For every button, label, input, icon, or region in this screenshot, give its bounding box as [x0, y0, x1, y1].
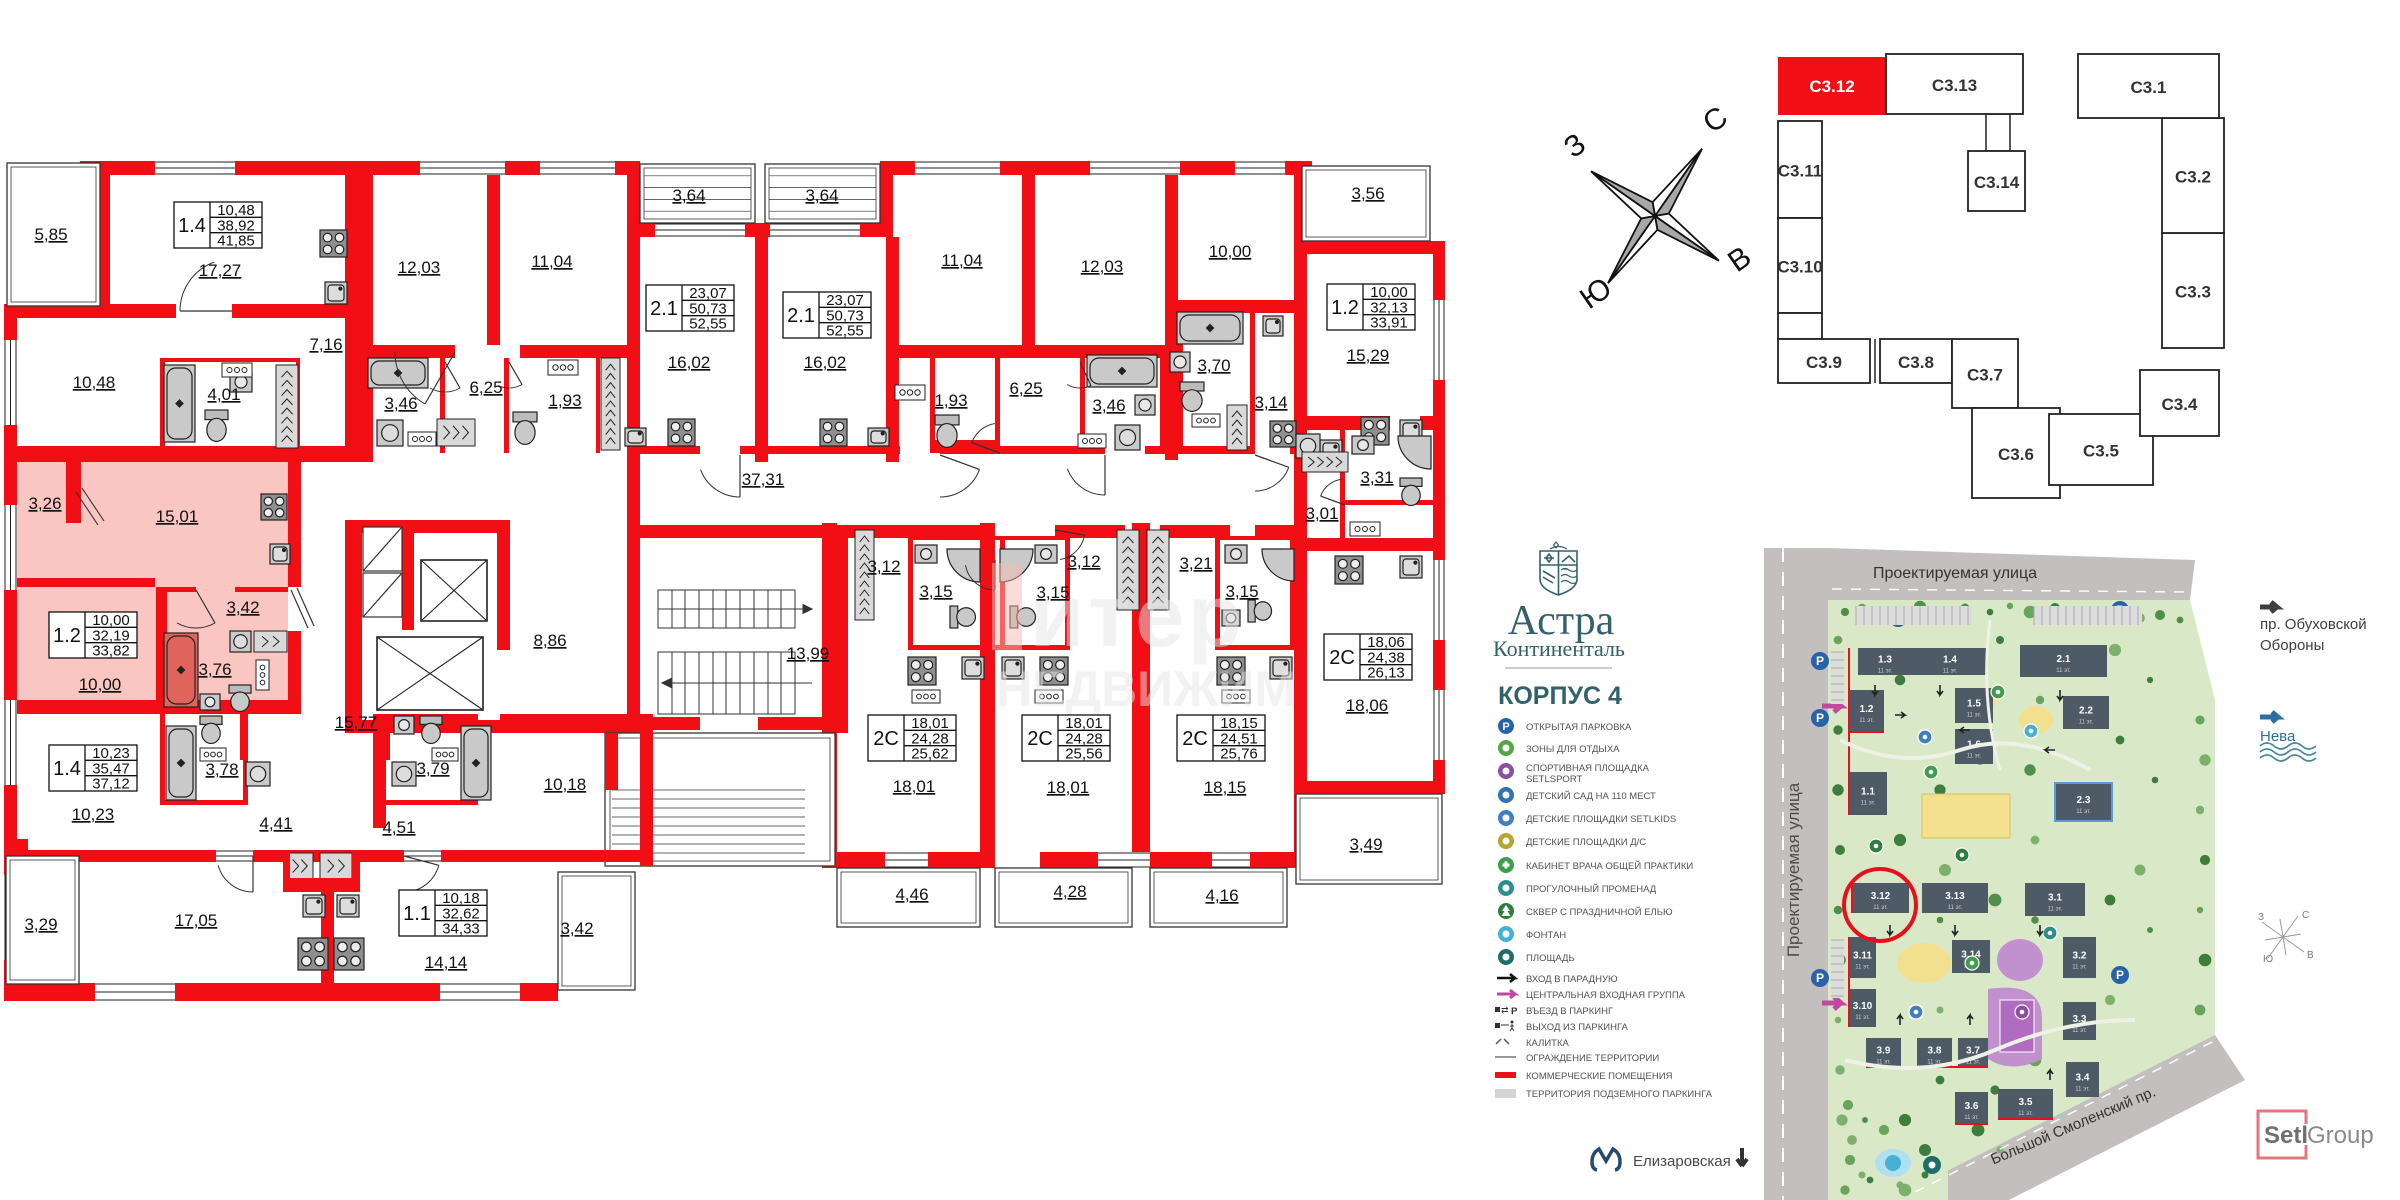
svg-text:Ю: Ю	[2263, 954, 2273, 965]
svg-text:3.10: 3.10	[1853, 1001, 1873, 1012]
svg-text:17,27: 17,27	[199, 261, 242, 280]
svg-text:ФОНТАН: ФОНТАН	[1526, 930, 1566, 941]
svg-text:37,31: 37,31	[742, 470, 785, 489]
svg-text:2С: 2С	[1027, 728, 1053, 750]
svg-text:Континенталь: Континенталь	[1493, 636, 1625, 661]
svg-text:СПОРТИВНАЯ ПЛОЩАДКА: СПОРТИВНАЯ ПЛОЩАДКА	[1526, 763, 1650, 774]
svg-text:пр. Обуховской: пр. Обуховской	[2260, 616, 2367, 633]
svg-text:15,77: 15,77	[335, 713, 378, 732]
svg-text:С3.11: С3.11	[1778, 162, 1822, 181]
svg-text:18,01: 18,01	[1047, 778, 1090, 797]
svg-text:4,16: 4,16	[1205, 886, 1238, 905]
svg-text:3.6: 3.6	[1965, 1101, 1979, 1112]
svg-text:11 эт.: 11 эт.	[2056, 668, 2071, 674]
svg-text:1.2: 1.2	[1331, 297, 1359, 319]
svg-text:15,29: 15,29	[1347, 346, 1390, 365]
svg-text:11 эт.: 11 эт.	[1964, 1115, 1979, 1121]
svg-text:итер: итер	[1030, 566, 1246, 665]
svg-text:25,62: 25,62	[911, 746, 949, 763]
svg-text:3,46: 3,46	[1092, 396, 1125, 415]
svg-text:SETLSPORT: SETLSPORT	[1526, 774, 1583, 785]
svg-text:2.1: 2.1	[787, 305, 815, 327]
svg-text:11,04: 11,04	[531, 252, 572, 271]
svg-text:С3.8: С3.8	[1898, 353, 1934, 372]
svg-text:3,12: 3,12	[867, 557, 900, 576]
svg-text:P: P	[1502, 721, 1509, 733]
svg-text:С3.4: С3.4	[2162, 395, 2198, 414]
svg-text:3.1: 3.1	[2048, 893, 2062, 904]
svg-text:11 эт.: 11 эт.	[2075, 1087, 2090, 1093]
svg-text:11 эт.: 11 эт.	[1943, 669, 1958, 675]
svg-text:2С: 2С	[1329, 647, 1355, 669]
svg-text:3,46: 3,46	[384, 394, 417, 413]
svg-text:ДЕТСКИЙ САД НА 110 МЕСТ: ДЕТСКИЙ САД НА 110 МЕСТ	[1526, 790, 1656, 802]
svg-text:12,03: 12,03	[398, 258, 441, 277]
svg-text:С3.1: С3.1	[2131, 78, 2167, 97]
svg-text:26,13: 26,13	[1367, 665, 1405, 682]
svg-text:С3.2: С3.2	[2175, 168, 2211, 187]
svg-text:11 эт.: 11 эт.	[2076, 809, 2091, 815]
svg-text:16,02: 16,02	[804, 353, 847, 372]
svg-text:11 эт.: 11 эт.	[2072, 1028, 2087, 1034]
svg-text:2С: 2С	[873, 728, 899, 750]
svg-text:P: P	[1511, 1006, 1518, 1017]
svg-text:4,46: 4,46	[895, 885, 928, 904]
svg-text:3.2: 3.2	[2073, 951, 2087, 962]
svg-text:1,93: 1,93	[548, 391, 581, 410]
svg-text:10,00: 10,00	[79, 675, 122, 694]
svg-text:6,25: 6,25	[469, 378, 502, 397]
svg-text:С3.9: С3.9	[1806, 353, 1842, 372]
svg-text:ЗОНЫ ДЛЯ ОТДЫХА: ЗОНЫ ДЛЯ ОТДЫХА	[1526, 744, 1620, 755]
svg-text:3,42: 3,42	[560, 919, 593, 938]
svg-text:КАЛИТКА: КАЛИТКА	[1526, 1038, 1569, 1049]
svg-text:10,00: 10,00	[1209, 242, 1252, 261]
svg-text:3.11: 3.11	[1853, 951, 1872, 962]
svg-text:3.12: 3.12	[1871, 891, 1891, 902]
svg-text:С3.5: С3.5	[2083, 442, 2119, 461]
svg-text:15,01: 15,01	[156, 507, 199, 526]
svg-text:С3.12: С3.12	[1809, 77, 1854, 96]
svg-text:ОТКРЫТАЯ ПАРКОВКА: ОТКРЫТАЯ ПАРКОВКА	[1526, 722, 1632, 733]
svg-text:13,99: 13,99	[787, 644, 830, 663]
svg-text:3,29: 3,29	[24, 915, 57, 934]
svg-text:4,28: 4,28	[1053, 882, 1086, 901]
svg-text:18,01: 18,01	[893, 777, 936, 796]
svg-text:С3.10: С3.10	[1777, 258, 1822, 277]
svg-text:3.5: 3.5	[2019, 1097, 2033, 1108]
svg-text:В: В	[2307, 950, 2314, 961]
svg-text:8,86: 8,86	[533, 631, 566, 650]
svg-text:ВХОД В ПАРАДНУЮ: ВХОД В ПАРАДНУЮ	[1526, 974, 1618, 985]
svg-text:ЦЕНТРАЛЬНАЯ ВХОДНАЯ ГРУППА: ЦЕНТРАЛЬНАЯ ВХОДНАЯ ГРУППА	[1526, 990, 1686, 1001]
svg-text:1.4: 1.4	[178, 215, 206, 237]
svg-text:3,64: 3,64	[672, 186, 705, 205]
svg-text:P: P	[2116, 968, 2124, 982]
svg-text:С: С	[2302, 910, 2309, 921]
svg-text:З: З	[2258, 912, 2264, 923]
svg-text:2.1: 2.1	[650, 298, 678, 320]
svg-text:P: P	[1816, 654, 1824, 668]
svg-text:КАБИНЕТ ВРАЧА ОБЩЕЙ ПРАКТИКИ: КАБИНЕТ ВРАЧА ОБЩЕЙ ПРАКТИКИ	[1526, 860, 1693, 872]
svg-text:ТЕРРИТОРИЯ ПОДЗЕМНОГО ПАРКИНГА: ТЕРРИТОРИЯ ПОДЗЕМНОГО ПАРКИНГА	[1526, 1089, 1713, 1100]
svg-text:3.4: 3.4	[2076, 1073, 2090, 1084]
svg-text:6,25: 6,25	[1009, 379, 1042, 398]
svg-text:16,02: 16,02	[668, 353, 711, 372]
svg-text:1.3: 1.3	[1878, 655, 1892, 666]
svg-text:ВЫХОД ИЗ ПАРКИНГА: ВЫХОД ИЗ ПАРКИНГА	[1526, 1022, 1628, 1033]
svg-text:52,55: 52,55	[689, 316, 727, 333]
svg-text:2.1: 2.1	[2057, 654, 2071, 665]
svg-text:4,01: 4,01	[207, 385, 240, 404]
svg-text:11 эт.: 11 эт.	[1873, 905, 1888, 911]
svg-text:1.1: 1.1	[403, 903, 431, 925]
svg-text:3,15: 3,15	[1036, 583, 1069, 602]
svg-text:Group: Group	[2307, 1122, 2374, 1149]
svg-text:4,41: 4,41	[259, 814, 292, 833]
svg-text:С3.13: С3.13	[1932, 76, 1977, 95]
svg-text:ПЛОЩАДЬ: ПЛОЩАДЬ	[1526, 953, 1575, 964]
svg-text:11 эт.: 11 эт.	[1859, 718, 1874, 724]
svg-text:11 эт.: 11 эт.	[1861, 801, 1876, 807]
svg-text:3.8: 3.8	[1928, 1046, 1942, 1057]
svg-text:ВЪЕЗД В ПАРКИНГ: ВЪЕЗД В ПАРКИНГ	[1526, 1006, 1613, 1017]
svg-text:11 эт.: 11 эт.	[2048, 907, 2063, 913]
svg-text:1.2: 1.2	[53, 625, 81, 647]
svg-text:37,12: 37,12	[92, 776, 130, 793]
svg-text:Setl: Setl	[2264, 1122, 2308, 1149]
svg-text:25,76: 25,76	[1220, 746, 1258, 763]
svg-text:КОРПУС 4: КОРПУС 4	[1498, 682, 1622, 710]
svg-text:3,64: 3,64	[805, 186, 838, 205]
svg-text:3,42: 3,42	[226, 598, 259, 617]
svg-text:1.1: 1.1	[1861, 787, 1875, 798]
svg-text:4,51: 4,51	[382, 818, 415, 837]
svg-text:КОММЕРЧЕСКИЕ ПОМЕЩЕНИЯ: КОММЕРЧЕСКИЕ ПОМЕЩЕНИЯ	[1526, 1071, 1673, 1082]
svg-text:11 эт.: 11 эт.	[2018, 1111, 2033, 1117]
svg-text:1.2: 1.2	[1860, 704, 1874, 715]
svg-text:3,76: 3,76	[198, 660, 231, 679]
svg-text:3,15: 3,15	[919, 582, 952, 601]
svg-text:11 эт.: 11 эт.	[1878, 669, 1893, 675]
svg-text:18,15: 18,15	[1204, 778, 1247, 797]
svg-text:ДЕТСКИЕ ПЛОЩАДКИ Д/С: ДЕТСКИЕ ПЛОЩАДКИ Д/С	[1526, 837, 1646, 848]
svg-text:11 эт.: 11 эт.	[1967, 754, 1982, 760]
svg-text:3,78: 3,78	[205, 760, 238, 779]
svg-text:12,03: 12,03	[1081, 257, 1124, 276]
svg-text:3,31: 3,31	[1360, 468, 1393, 487]
svg-text:⇄: ⇄	[1501, 1005, 1509, 1015]
svg-text:17,05: 17,05	[175, 911, 218, 930]
svg-text:1.4: 1.4	[53, 758, 81, 780]
svg-text:Обороны: Обороны	[2260, 637, 2324, 654]
svg-text:2.2: 2.2	[2079, 706, 2093, 717]
svg-text:P: P	[1816, 971, 1824, 985]
svg-text:10,18: 10,18	[544, 775, 587, 794]
svg-text:7,16: 7,16	[309, 335, 342, 354]
svg-text:3,12: 3,12	[1067, 552, 1100, 571]
svg-text:10,48: 10,48	[73, 373, 116, 392]
svg-text:3,49: 3,49	[1349, 835, 1382, 854]
svg-text:Проектируемая улица: Проектируемая улица	[1784, 782, 1803, 957]
svg-text:3.13: 3.13	[1945, 891, 1965, 902]
svg-text:3,15: 3,15	[1225, 582, 1258, 601]
svg-text:3.9: 3.9	[1877, 1046, 1891, 1057]
svg-text:2.3: 2.3	[2077, 795, 2091, 806]
svg-text:11 эт.: 11 эт.	[1967, 713, 1982, 719]
svg-text:С3.6: С3.6	[1998, 445, 2034, 464]
svg-text:10,23: 10,23	[72, 805, 115, 824]
svg-text:2С: 2С	[1182, 728, 1208, 750]
svg-text:5,85: 5,85	[34, 225, 67, 244]
svg-text:3,26: 3,26	[28, 494, 61, 513]
svg-text:3,01: 3,01	[1305, 504, 1338, 523]
svg-text:ДЕТСКИЕ ПЛОЩАДКИ SETLKIDS: ДЕТСКИЕ ПЛОЩАДКИ SETLKIDS	[1526, 814, 1676, 825]
svg-text:3,79: 3,79	[416, 759, 449, 778]
svg-text:ПРОГУЛОЧНЫЙ ПРОМЕНАД: ПРОГУЛОЧНЫЙ ПРОМЕНАД	[1526, 883, 1657, 895]
svg-text:СКВЕР С ПРАЗДНИЧНОЙ ЕЛЬЮ: СКВЕР С ПРАЗДНИЧНОЙ ЕЛЬЮ	[1526, 906, 1673, 918]
svg-text:1.5: 1.5	[1967, 699, 1981, 710]
svg-text:С3.7: С3.7	[1967, 366, 2003, 385]
svg-text:41,85: 41,85	[217, 233, 255, 250]
svg-text:3,21: 3,21	[1179, 554, 1212, 573]
svg-text:НЕДВИЖИМ: НЕДВИЖИМ	[996, 661, 1296, 717]
svg-text:52,55: 52,55	[826, 323, 864, 340]
svg-text:11 эт.: 11 эт.	[1855, 1015, 1870, 1021]
svg-text:P: P	[1816, 711, 1824, 725]
svg-text:3,70: 3,70	[1197, 356, 1230, 375]
svg-text:11 эт.: 11 эт.	[2079, 720, 2094, 726]
svg-text:С3.3: С3.3	[2175, 283, 2211, 302]
svg-text:14,14: 14,14	[425, 953, 468, 972]
svg-text:Елизаровская: Елизаровская	[1633, 1153, 1731, 1170]
svg-text:33,91: 33,91	[1370, 315, 1408, 332]
svg-text:11 эт.: 11 эт.	[1948, 905, 1963, 911]
svg-text:1,93: 1,93	[934, 391, 967, 410]
svg-text:3,14: 3,14	[1254, 393, 1287, 412]
svg-text:11 эт.: 11 эт.	[2072, 965, 2087, 971]
svg-text:11,04: 11,04	[941, 251, 982, 270]
svg-text:34,33: 34,33	[442, 921, 480, 938]
svg-text:18,06: 18,06	[1346, 696, 1389, 715]
svg-text:33,82: 33,82	[92, 643, 130, 660]
svg-text:3,56: 3,56	[1351, 184, 1384, 203]
svg-text:1.4: 1.4	[1943, 655, 1957, 666]
svg-text:ОГРАЖДЕНИЕ ТЕРРИТОРИИ: ОГРАЖДЕНИЕ ТЕРРИТОРИИ	[1526, 1053, 1659, 1064]
svg-text:11 эт.: 11 эт.	[1855, 965, 1870, 971]
svg-text:Проектируемая улица: Проектируемая улица	[1873, 565, 2037, 582]
svg-text:25,56: 25,56	[1065, 746, 1103, 763]
svg-text:С3.14: С3.14	[1974, 173, 2020, 192]
